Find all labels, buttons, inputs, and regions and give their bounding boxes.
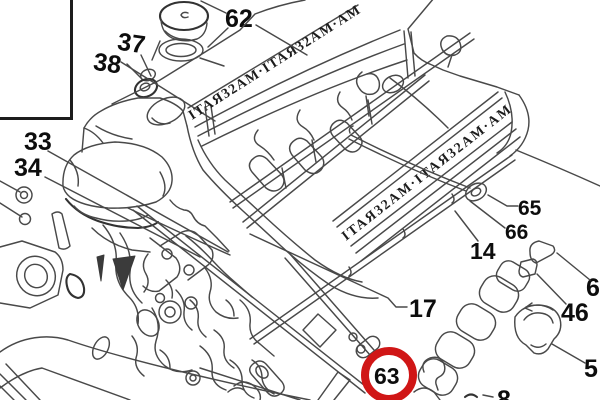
svg-text:62: 62 bbox=[225, 5, 253, 33]
svg-text:17: 17 bbox=[409, 295, 437, 323]
svg-text:66: 66 bbox=[505, 221, 528, 244]
svg-text:34: 34 bbox=[14, 154, 42, 182]
svg-text:8: 8 bbox=[497, 386, 511, 400]
svg-text:33: 33 bbox=[24, 128, 52, 156]
svg-text:ITAЯ32AM·ITAЯ32AM·AM: ITAЯ32AM·ITAЯ32AM·AM bbox=[186, 3, 363, 123]
svg-text:5: 5 bbox=[584, 355, 598, 383]
svg-text:65: 65 bbox=[518, 197, 542, 220]
svg-text:14: 14 bbox=[470, 238, 496, 264]
svg-text:38: 38 bbox=[92, 48, 124, 80]
svg-text:63: 63 bbox=[374, 363, 400, 389]
